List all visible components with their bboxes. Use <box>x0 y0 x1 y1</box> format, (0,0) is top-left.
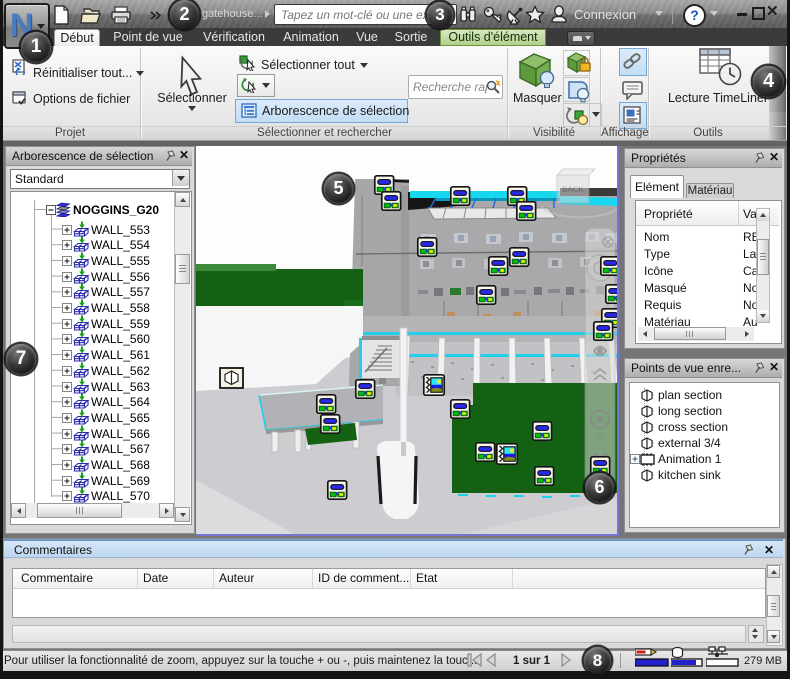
svg-text:N: N <box>600 214 607 224</box>
svg-text:BACK: BACK <box>562 185 584 194</box>
